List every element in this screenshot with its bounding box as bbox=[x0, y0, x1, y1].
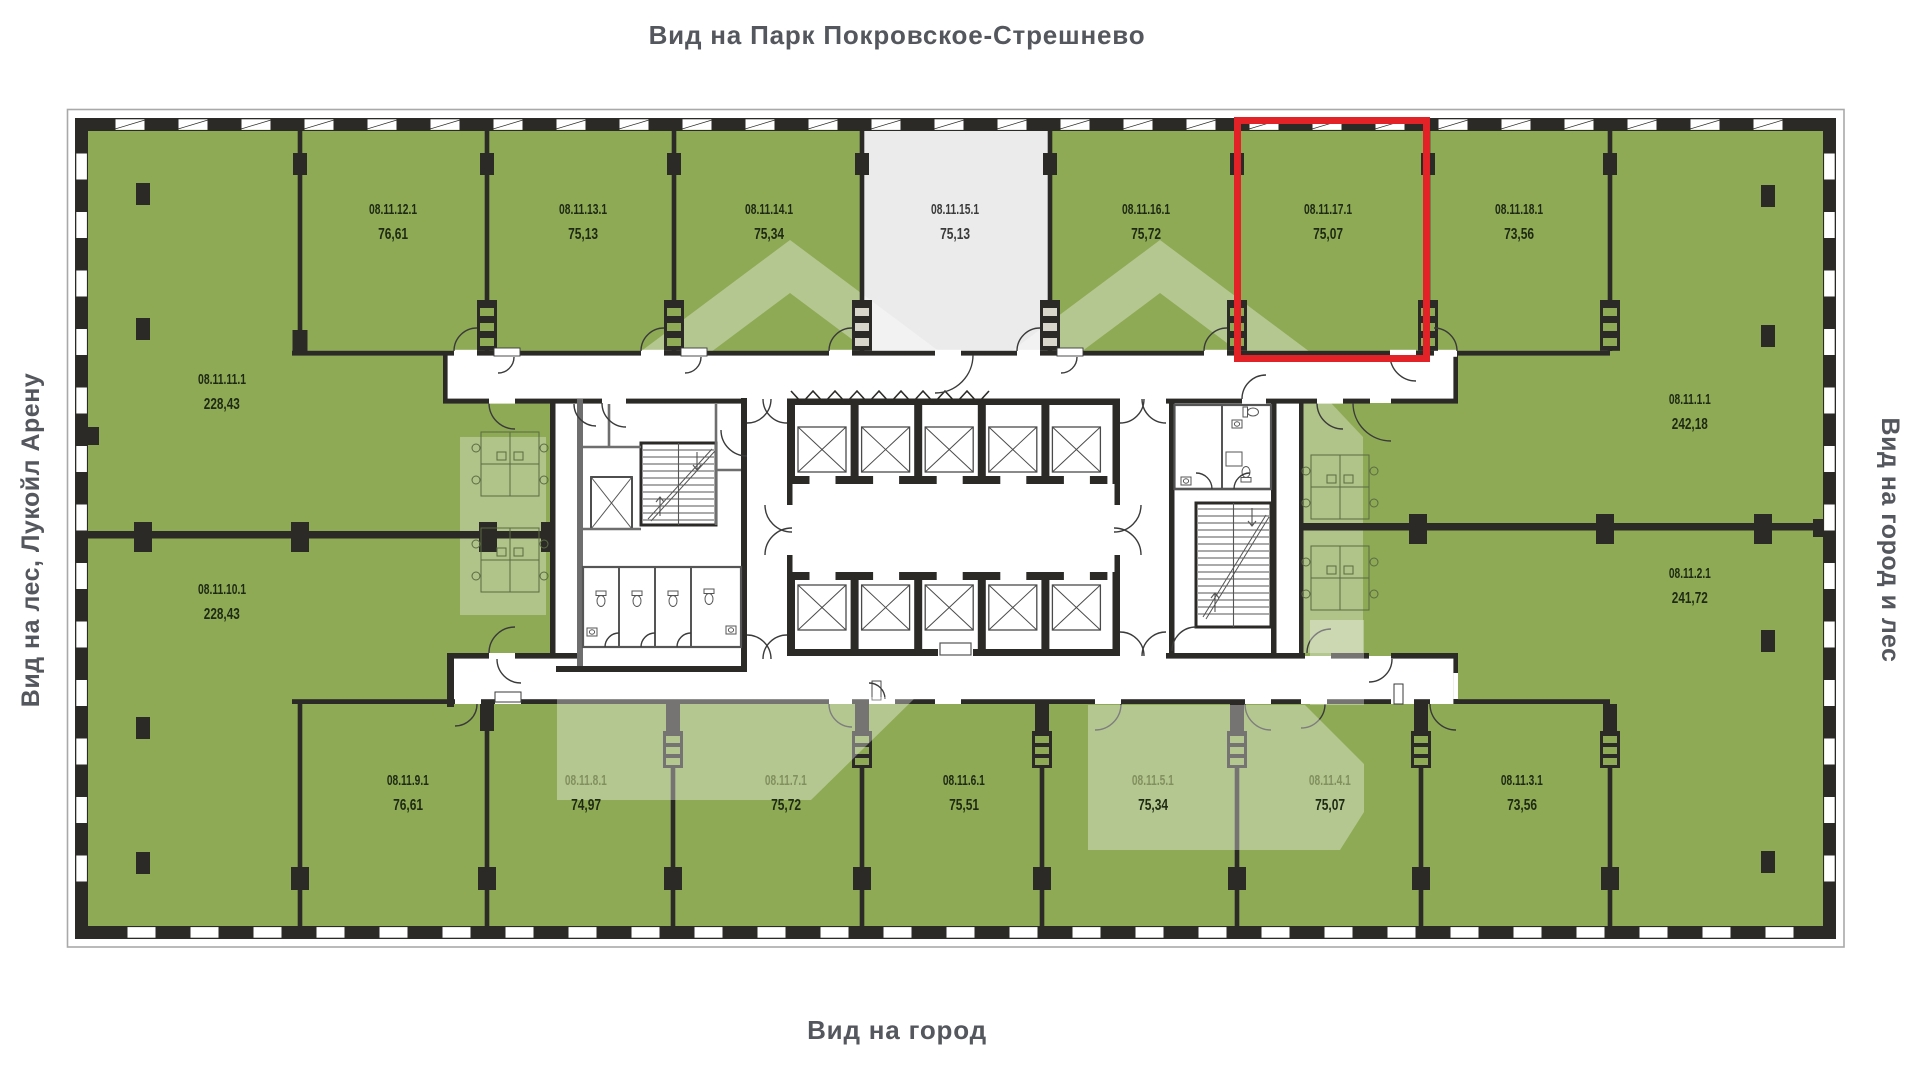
svg-text:75,07: 75,07 bbox=[1315, 797, 1345, 814]
svg-text:75,13: 75,13 bbox=[940, 226, 970, 243]
svg-text:74,97: 74,97 bbox=[571, 797, 601, 814]
svg-text:75,72: 75,72 bbox=[771, 797, 801, 814]
svg-text:Вид на Парк Покровское-Стрешне: Вид на Парк Покровское-Стрешнево bbox=[649, 20, 1146, 50]
svg-text:08.11.1.1: 08.11.1.1 bbox=[1669, 391, 1711, 408]
svg-text:75,72: 75,72 bbox=[1131, 226, 1161, 243]
svg-text:08.11.16.1: 08.11.16.1 bbox=[1122, 201, 1170, 218]
svg-text:228,43: 228,43 bbox=[204, 606, 240, 623]
svg-text:73,56: 73,56 bbox=[1504, 226, 1534, 243]
svg-text:08.11.12.1: 08.11.12.1 bbox=[369, 201, 417, 218]
svg-text:08.11.11.1: 08.11.11.1 bbox=[198, 371, 246, 388]
svg-text:08.11.6.1: 08.11.6.1 bbox=[943, 772, 985, 789]
svg-text:76,61: 76,61 bbox=[393, 797, 423, 814]
svg-text:08.11.3.1: 08.11.3.1 bbox=[1501, 772, 1543, 789]
svg-text:08.11.17.1: 08.11.17.1 bbox=[1304, 201, 1352, 218]
svg-text:242,18: 242,18 bbox=[1672, 416, 1708, 433]
svg-text:Вид на лес, Лукойл Арену: Вид на лес, Лукойл Арену bbox=[17, 373, 45, 707]
svg-text:08.11.9.1: 08.11.9.1 bbox=[387, 772, 429, 789]
svg-text:08.11.14.1: 08.11.14.1 bbox=[745, 201, 793, 218]
svg-text:75,13: 75,13 bbox=[568, 226, 598, 243]
svg-text:75,51: 75,51 bbox=[949, 797, 979, 814]
svg-text:75,34: 75,34 bbox=[1138, 797, 1168, 814]
svg-text:76,61: 76,61 bbox=[378, 226, 408, 243]
svg-text:08.11.18.1: 08.11.18.1 bbox=[1495, 201, 1543, 218]
svg-text:08.11.10.1: 08.11.10.1 bbox=[198, 581, 246, 598]
svg-text:228,43: 228,43 bbox=[204, 396, 240, 413]
svg-text:08.11.8.1: 08.11.8.1 bbox=[565, 772, 607, 789]
svg-text:08.11.7.1: 08.11.7.1 bbox=[765, 772, 807, 789]
svg-text:241,72: 241,72 bbox=[1672, 590, 1708, 607]
svg-text:75,07: 75,07 bbox=[1313, 226, 1343, 243]
svg-text:08.11.13.1: 08.11.13.1 bbox=[559, 201, 607, 218]
svg-text:08.11.2.1: 08.11.2.1 bbox=[1669, 565, 1711, 582]
svg-text:08.11.4.1: 08.11.4.1 bbox=[1309, 772, 1351, 789]
svg-text:08.11.15.1: 08.11.15.1 bbox=[931, 201, 979, 218]
svg-text:Вид на город: Вид на город bbox=[807, 1015, 987, 1045]
svg-text:08.11.5.1: 08.11.5.1 bbox=[1132, 772, 1174, 789]
svg-text:73,56: 73,56 bbox=[1507, 797, 1537, 814]
svg-text:75,34: 75,34 bbox=[754, 226, 784, 243]
svg-text:Вид на город и лес: Вид на город и лес bbox=[1876, 418, 1904, 663]
